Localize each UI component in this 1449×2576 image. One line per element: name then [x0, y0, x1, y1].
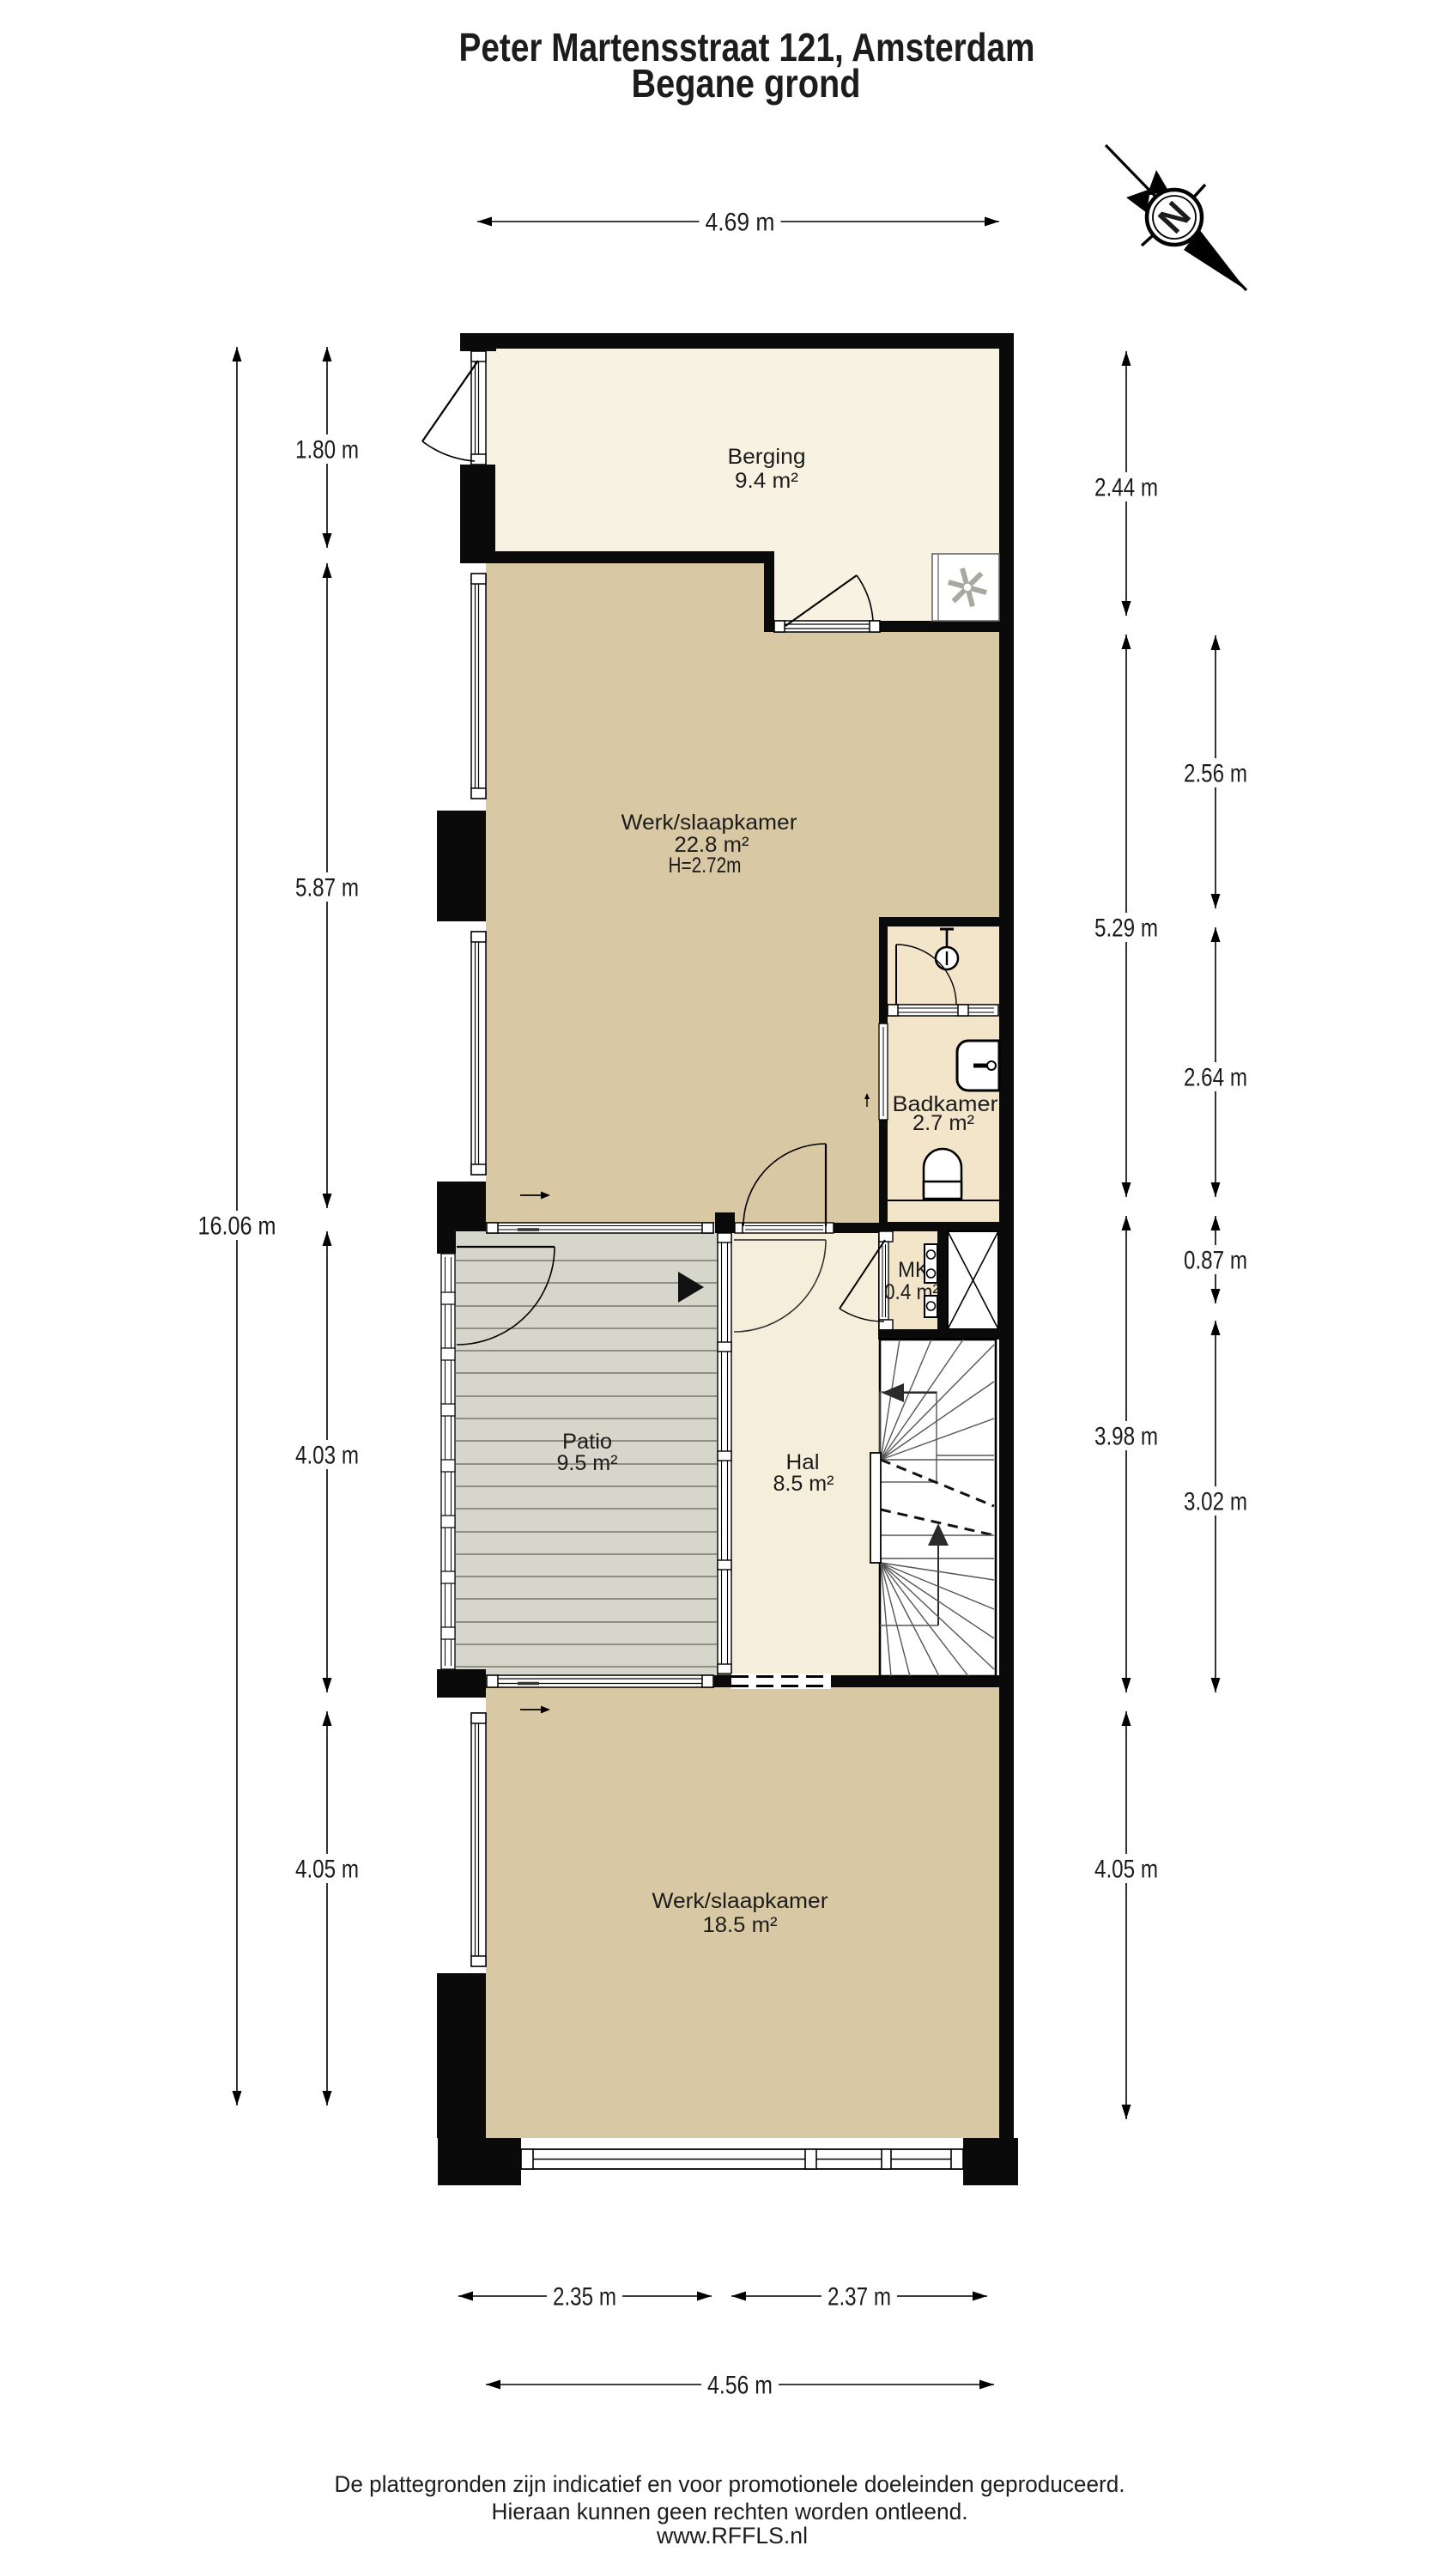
svg-text:Berging: Berging	[728, 445, 806, 469]
svg-text:4.05 m: 4.05 m	[1094, 1856, 1158, 1884]
svg-text:2.44 m: 2.44 m	[1094, 474, 1158, 502]
svg-text:5.87 m: 5.87 m	[295, 874, 359, 902]
svg-text:2.64 m: 2.64 m	[1184, 1064, 1247, 1092]
svg-text:3.02 m: 3.02 m	[1184, 1488, 1247, 1516]
svg-text:H=2.72m: H=2.72m	[669, 854, 742, 878]
svg-text:5.29 m: 5.29 m	[1094, 914, 1158, 943]
svg-text:Begane grond: Begane grond	[632, 61, 861, 106]
svg-text:4.05 m: 4.05 m	[295, 1856, 359, 1884]
svg-text:9.5 m²: 9.5 m²	[557, 1451, 618, 1475]
svg-text:Werk/slaapkamer: Werk/slaapkamer	[652, 1889, 828, 1913]
svg-text:2.35 m: 2.35 m	[553, 2283, 616, 2312]
svg-text:De plattegronden zijn indicati: De plattegronden zijn indicatief en voor…	[335, 2471, 1125, 2497]
svg-text:0.87 m: 0.87 m	[1184, 1247, 1247, 1275]
svg-text:9.4 m²: 9.4 m²	[735, 469, 798, 493]
svg-text:8.5 m²: 8.5 m²	[773, 1472, 834, 1496]
svg-text:Patio: Patio	[562, 1430, 612, 1454]
svg-text:2.37 m: 2.37 m	[828, 2283, 891, 2312]
svg-text:2.7 m²: 2.7 m²	[912, 1111, 974, 1135]
svg-text:1.80 m: 1.80 m	[295, 436, 359, 465]
svg-text:4.56 m: 4.56 m	[707, 2372, 773, 2400]
svg-text:Hieraan kunnen geen rechten wo: Hieraan kunnen geen rechten worden ontle…	[492, 2499, 968, 2524]
svg-text:Werk/slaapkamer: Werk/slaapkamer	[621, 811, 797, 835]
svg-text:www.RFFLS.nl: www.RFFLS.nl	[656, 2523, 808, 2549]
svg-text:16.06 m: 16.06 m	[198, 1212, 276, 1241]
svg-text:3.98 m: 3.98 m	[1094, 1423, 1158, 1451]
svg-text:4.03 m: 4.03 m	[295, 1442, 359, 1470]
svg-text:Hal: Hal	[786, 1450, 820, 1474]
svg-text:2.56 m: 2.56 m	[1184, 760, 1247, 788]
svg-text:4.69 m: 4.69 m	[706, 209, 775, 237]
svg-text:18.5 m²: 18.5 m²	[703, 1913, 778, 1937]
